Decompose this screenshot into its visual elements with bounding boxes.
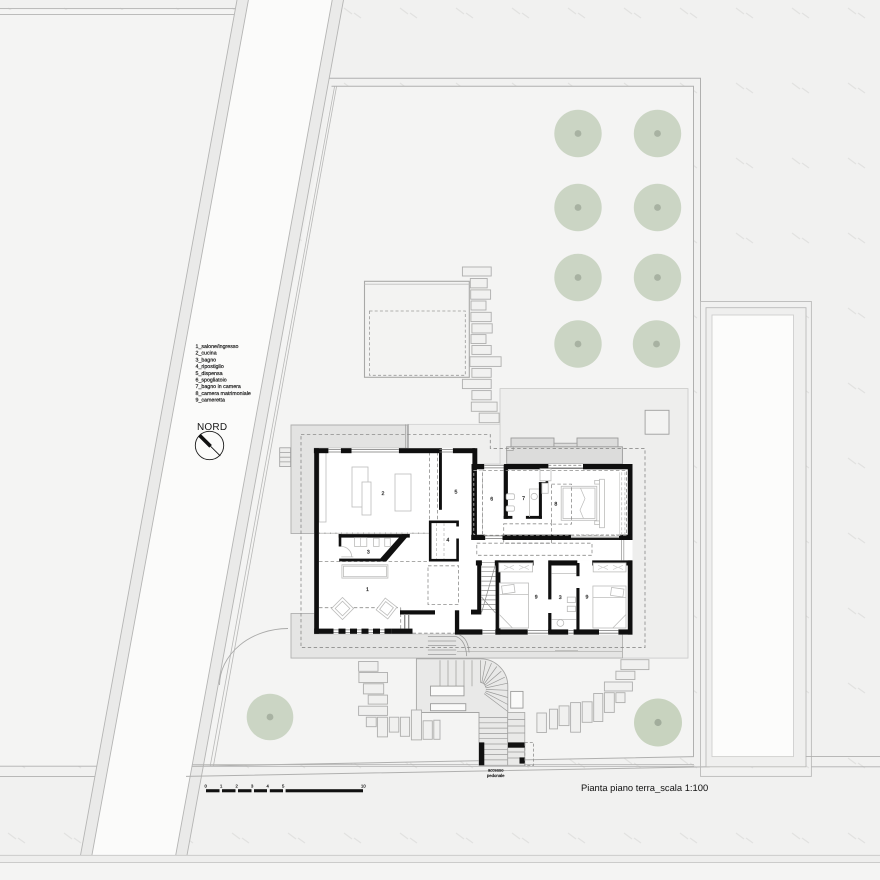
svg-text:6: 6 — [490, 497, 493, 503]
svg-text:2_cucina: 2_cucina — [196, 351, 217, 357]
svg-text:8: 8 — [554, 502, 557, 508]
svg-text:accesso: accesso — [488, 768, 504, 773]
svg-text:9: 9 — [586, 595, 589, 601]
svg-text:4: 4 — [446, 538, 449, 544]
svg-text:7: 7 — [522, 496, 525, 502]
svg-text:5_dispensa: 5_dispensa — [196, 371, 223, 377]
svg-text:9: 9 — [535, 595, 538, 601]
svg-text:3: 3 — [367, 550, 370, 556]
svg-text:9_cameretta: 9_cameretta — [196, 398, 225, 404]
svg-text:10: 10 — [361, 784, 366, 789]
svg-text:5: 5 — [455, 490, 458, 496]
svg-text:6_spogliatoio: 6_spogliatoio — [196, 378, 227, 384]
svg-text:2: 2 — [382, 491, 385, 497]
svg-text:3: 3 — [559, 595, 562, 601]
svg-text:1_salone/ingresso: 1_salone/ingresso — [196, 344, 239, 350]
svg-text:pedonale: pedonale — [487, 773, 505, 778]
svg-text:8_camera matrimoniale: 8_camera matrimoniale — [196, 391, 251, 397]
svg-text:7_bagno in camera: 7_bagno in camera — [196, 384, 241, 390]
svg-text:3_bagno: 3_bagno — [196, 357, 217, 363]
svg-text:Pianta piano terra_scala 1:100: Pianta piano terra_scala 1:100 — [581, 782, 708, 793]
svg-text:4_ripostiglio: 4_ripostiglio — [196, 364, 224, 370]
svg-text:1: 1 — [366, 587, 369, 593]
